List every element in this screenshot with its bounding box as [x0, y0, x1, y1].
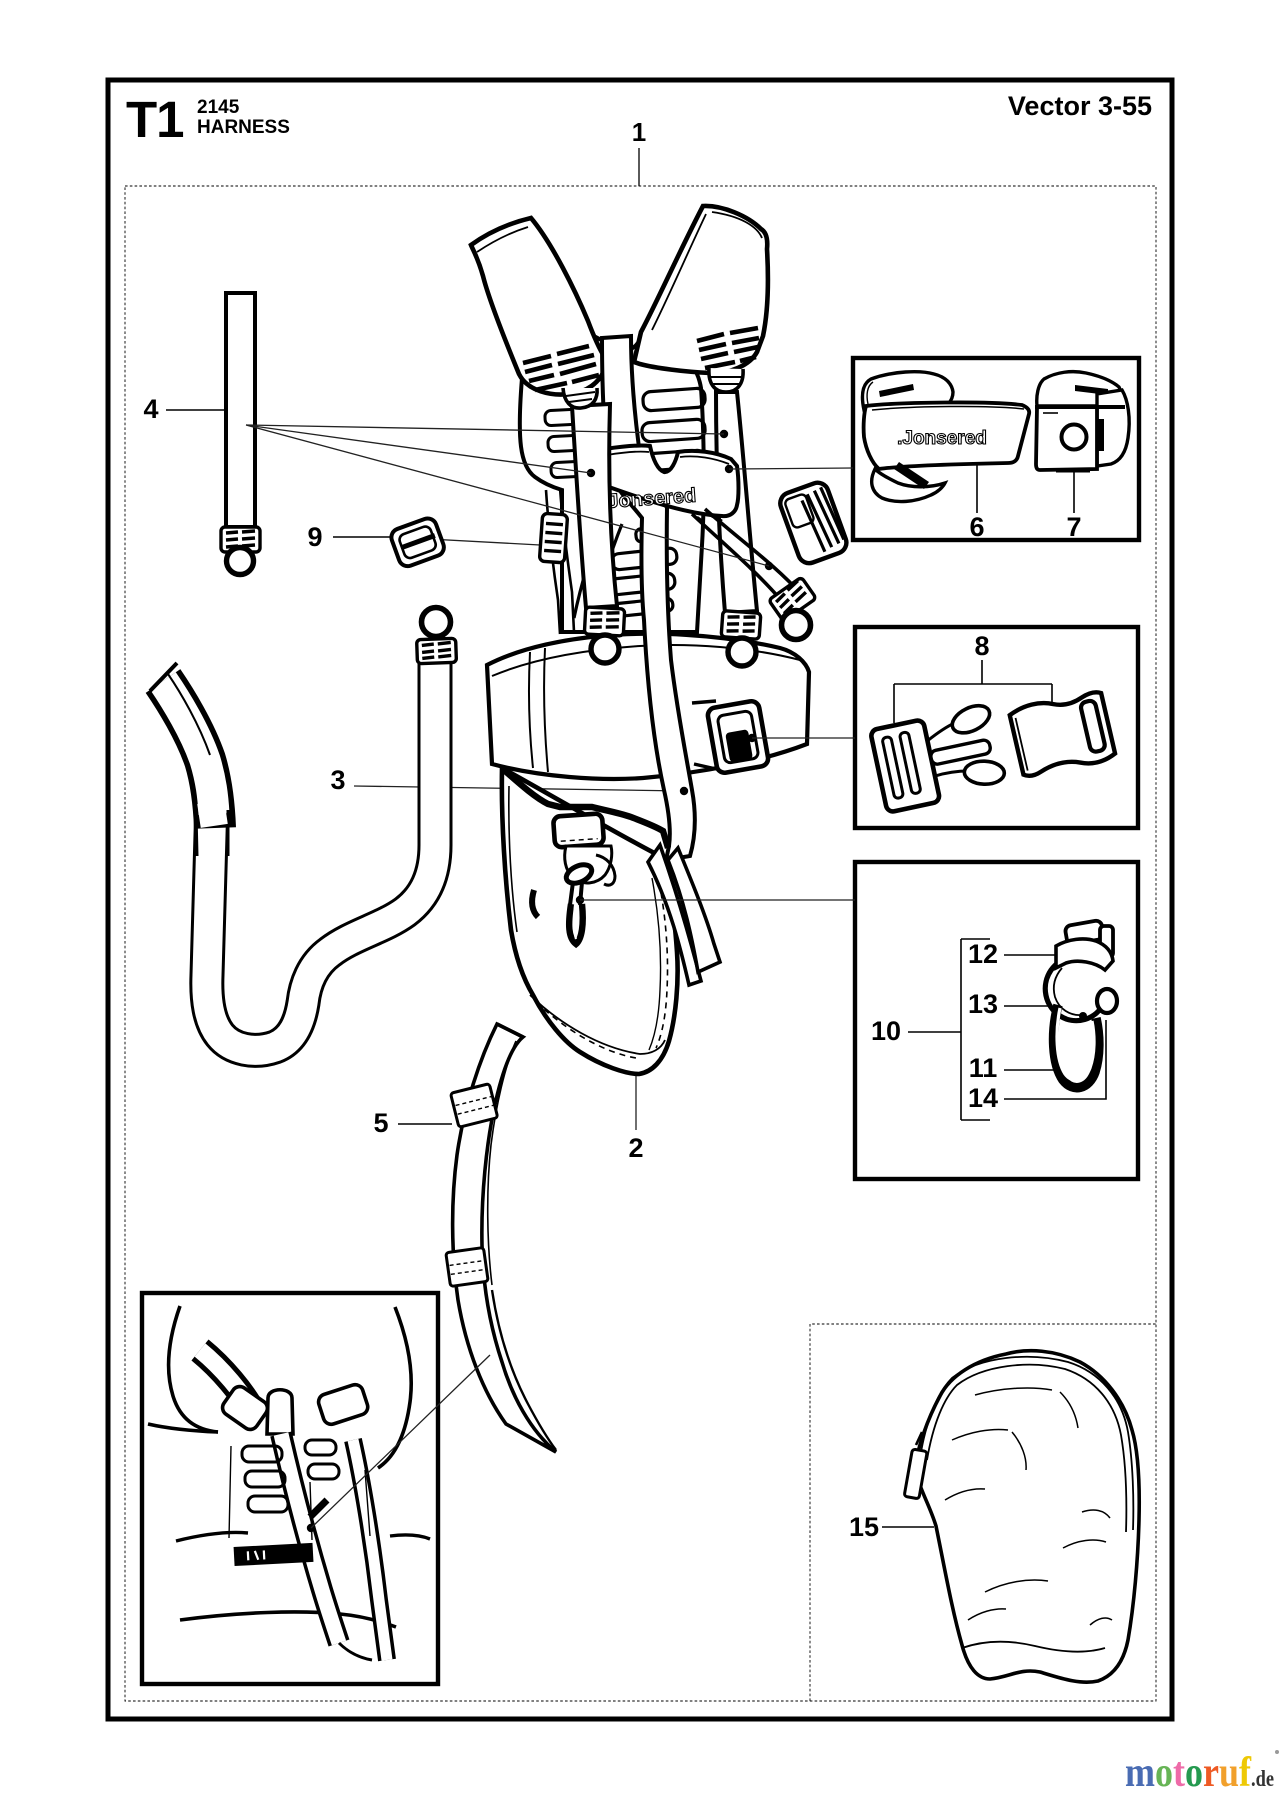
svg-text:2: 2	[628, 1133, 643, 1163]
svg-text:14: 14	[968, 1083, 998, 1113]
svg-text:7: 7	[1066, 512, 1081, 542]
svg-text:3: 3	[330, 765, 345, 795]
svg-text:.Jonsered: .Jonsered	[897, 428, 987, 449]
svg-text:.de: .de	[1251, 1766, 1274, 1791]
svg-text:15: 15	[849, 1512, 879, 1542]
svg-text:11: 11	[969, 1053, 998, 1083]
svg-text:10: 10	[871, 1016, 901, 1046]
svg-text:Vector 3-55: Vector 3-55	[1008, 91, 1152, 121]
svg-text:9: 9	[307, 522, 322, 552]
svg-text:6: 6	[969, 512, 984, 542]
svg-text:HARNESS: HARNESS	[197, 117, 290, 138]
svg-text:1: 1	[632, 117, 646, 147]
svg-text:4: 4	[143, 394, 158, 424]
svg-text:motoruf: motoruf	[1125, 1750, 1252, 1796]
svg-text:8: 8	[974, 631, 989, 661]
svg-text:T1: T1	[126, 91, 184, 148]
svg-text:13: 13	[968, 989, 998, 1019]
svg-text:2145: 2145	[197, 97, 240, 118]
svg-text:12: 12	[968, 939, 998, 969]
svg-text:5: 5	[373, 1108, 388, 1138]
